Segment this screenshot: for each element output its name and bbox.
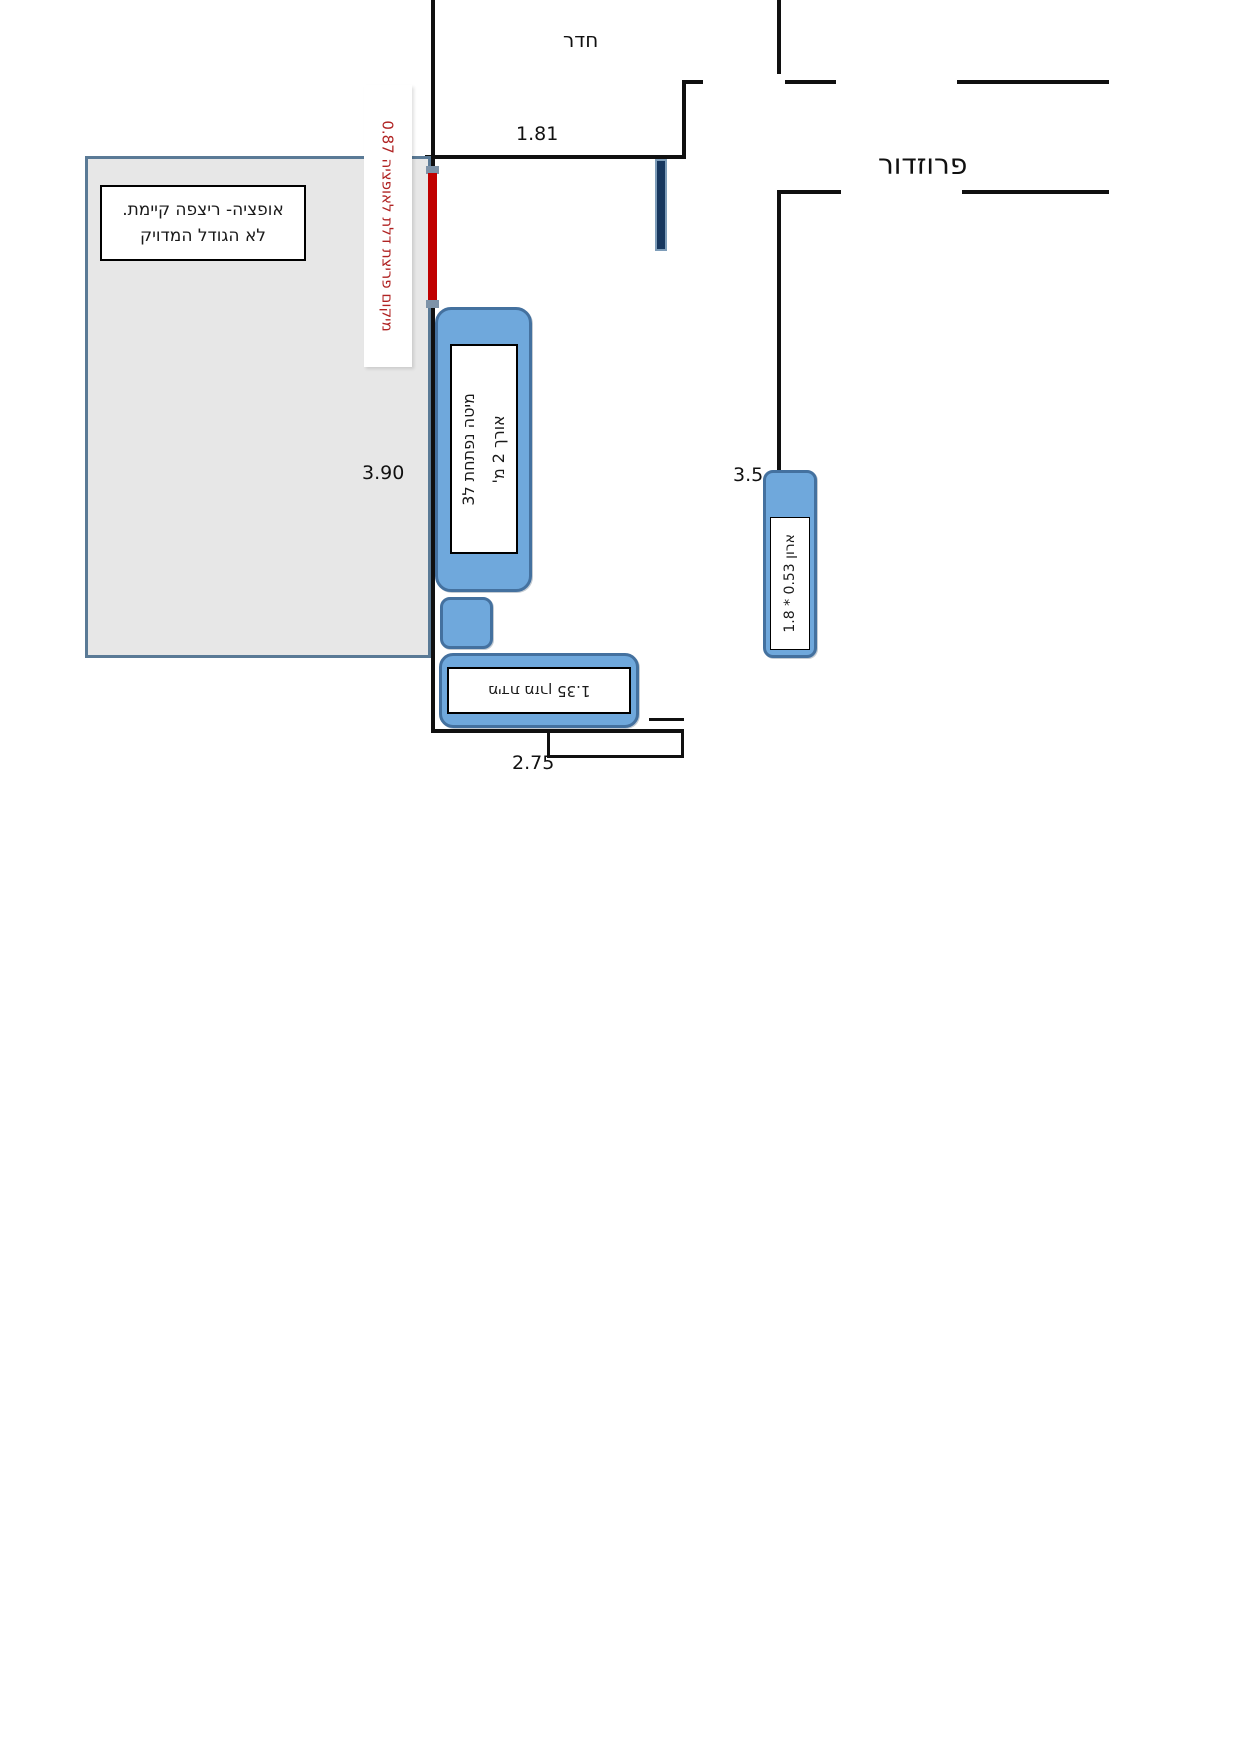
- dim-bottom-wall: 2.75: [512, 752, 554, 774]
- wall-bottom: [431, 729, 684, 733]
- wall-room-bottom: [425, 155, 684, 159]
- wall-corridor-bottom-seg2: [962, 190, 1109, 194]
- door-breach-note-text: מיקום פריצת דלת לאופציה 0.87: [379, 120, 397, 331]
- bed-label-line2: אורך 2 מ': [484, 393, 514, 506]
- wall-corridor-l-stub: [682, 80, 703, 84]
- option-note-line2: לא הגודל המדויק: [110, 226, 296, 246]
- closet-label: ארון 0.53 * 1.8: [770, 517, 810, 650]
- door-breach-note-strip: מיקום פריצת דלת לאופציה 0.87: [364, 85, 412, 367]
- wall-bottom-inner-stub: [649, 718, 684, 721]
- wall-corridor-l-vertical: [682, 80, 686, 159]
- side-unit: [440, 597, 493, 649]
- wall-bottom-notch-bottom: [547, 755, 684, 758]
- wall-corridor-top-seg2: [957, 80, 1109, 84]
- wall-room-right-top: [777, 0, 781, 74]
- dim-left-wall: 3.90: [362, 462, 404, 484]
- wall-bottom-notch-right: [681, 729, 684, 757]
- door-breach-marker-cap-bottom: [426, 300, 439, 308]
- room-label: חדר: [563, 28, 598, 52]
- mattress-bar-label-text: מידת מזרן 1.35: [488, 682, 590, 700]
- wall-corridor-bottom-seg1: [777, 190, 841, 194]
- floorplan-page: { "rooms": { "top_room_label": "חדר", "c…: [0, 0, 1240, 1754]
- mattress-bar-label: מידת מזרן 1.35: [447, 667, 631, 714]
- open-door-leaf: [655, 159, 667, 251]
- dim-room-opening: 1.81: [516, 123, 558, 145]
- bed-label: מיטה נפתחת ל3 אורך 2 מ': [450, 344, 518, 554]
- dim-right-wall: 3.5: [733, 464, 763, 486]
- bed-label-line1: מיטה נפתחת ל3: [454, 393, 484, 506]
- option-note-box: אופציה- ריצפה קיימת. לא הגודל המדויק: [100, 185, 306, 261]
- corridor-label: פרוזדור: [878, 148, 967, 181]
- closet-label-text: ארון 0.53 * 1.8: [777, 534, 804, 633]
- option-note-line1: אופציה- ריצפה קיימת.: [110, 200, 296, 220]
- door-breach-marker: [428, 173, 437, 301]
- wall-corridor-top-seg1: [785, 80, 836, 84]
